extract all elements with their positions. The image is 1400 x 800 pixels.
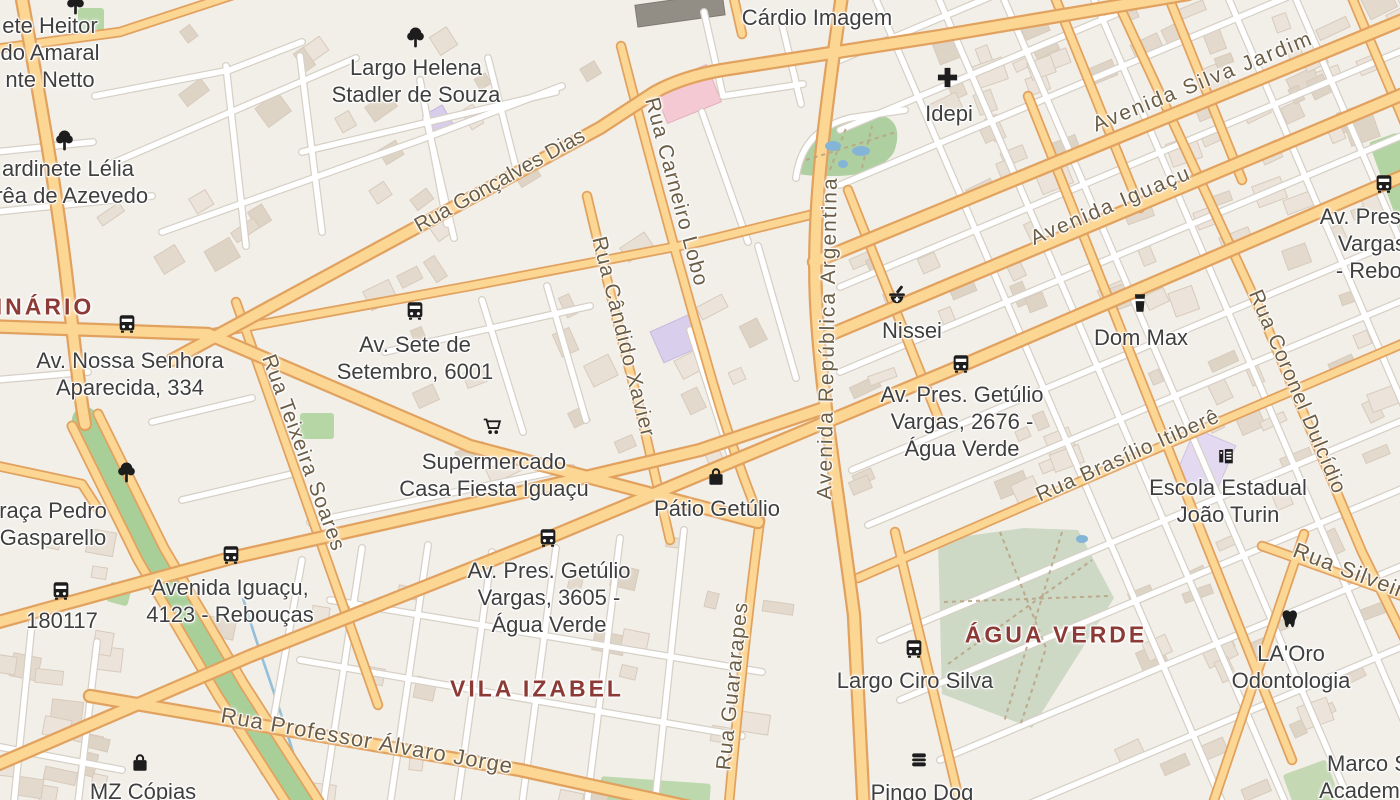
map-canvas[interactable]: INÁRIOVILA IZABELÁGUA VERDERua Gonçalves… xyxy=(0,0,1400,800)
tree-icon xyxy=(52,128,77,153)
place-label-line: do Amaral xyxy=(0,39,99,66)
place-label-line: Aparecida, 334 xyxy=(36,374,224,401)
place-label-idepi: Idepi xyxy=(925,100,973,127)
place-label-line: Avenida Iguaçu, xyxy=(146,574,314,601)
place-label-pingo-dog: Pingo Dog xyxy=(871,779,974,800)
place-label-sete: Av. Sete deSetembro, 6001 xyxy=(337,331,494,385)
place-label-laoro: LA'OroOdontologia xyxy=(1232,640,1351,694)
place-label-line: Nissei xyxy=(882,317,942,344)
place-label-line: ardinete Lélia xyxy=(0,155,148,182)
place-label-line: raça Pedro xyxy=(0,497,107,524)
place-label-line: Água Verde xyxy=(467,611,630,638)
place-label-line: MZ Cópias xyxy=(90,778,196,800)
place-label-line: Marco S xyxy=(1319,750,1400,777)
place-label-marco: Marco SAcademia xyxy=(1319,750,1400,800)
shopping-bag-icon xyxy=(129,752,151,774)
place-label-line: Academia xyxy=(1319,777,1400,800)
place-label-line: LA'Oro xyxy=(1232,640,1351,667)
place-label-getulio-reb: Av. Pres. GVargas,- Rebou xyxy=(1320,203,1400,284)
place-label-line: Escola Estadual xyxy=(1149,474,1307,501)
place-label-praca-pedro: raça PedroGasparello xyxy=(0,497,107,551)
place-label-line: 4123 - Rebouças xyxy=(146,601,314,628)
district-label-vila-izabel: VILA IZABEL xyxy=(450,676,624,703)
place-label-getulio-3605: Av. Pres. GetúlioVargas, 3605 -Água Verd… xyxy=(467,557,630,638)
place-label-line: Av. Nossa Senhora xyxy=(36,347,224,374)
bar-icon xyxy=(1129,292,1151,314)
place-label-cardio: Cárdio Imagem xyxy=(742,4,892,31)
place-label-line: Av. Pres. Getúlio xyxy=(880,381,1043,408)
place-label-line: rrêa de Azevedo xyxy=(0,182,148,209)
place-label-line: Gasparello xyxy=(0,524,107,551)
place-label-line: Av. Pres. Getúlio xyxy=(467,557,630,584)
bus-stop-icon xyxy=(903,638,925,660)
place-label-patio: Pátio Getúlio xyxy=(654,495,780,522)
place-label-line: Largo Ciro Silva xyxy=(837,667,994,694)
place-label-line: Av. Pres. G xyxy=(1320,203,1400,230)
tree-icon xyxy=(114,460,139,485)
bus-stop-icon xyxy=(220,544,242,566)
place-label-largo-helena: Largo HelenaStadler de Souza xyxy=(332,54,501,108)
shopping-bag-icon xyxy=(705,466,727,488)
place-label-mz-copias: MZ Cópias xyxy=(90,778,196,800)
district-label-in-rio: INÁRIO xyxy=(0,294,94,321)
bus-stop-icon xyxy=(1373,173,1395,195)
place-label-line: - Rebou xyxy=(1320,257,1400,284)
hospital-icon xyxy=(935,65,960,90)
place-label-line: Cárdio Imagem xyxy=(742,4,892,31)
place-label-line: Odontologia xyxy=(1232,667,1351,694)
fast-food-icon xyxy=(908,749,930,771)
place-label-dom-max: Dom Max xyxy=(1094,324,1188,351)
place-label-line: Pátio Getúlio xyxy=(654,495,780,522)
place-label-line: Pingo Dog xyxy=(871,779,974,800)
place-label-line: Dom Max xyxy=(1094,324,1188,351)
place-label-line: João Turin xyxy=(1149,501,1307,528)
place-label-getulio-2676: Av. Pres. GetúlioVargas, 2676 -Água Verd… xyxy=(880,381,1043,462)
supermarket-icon xyxy=(481,416,503,438)
place-label-heitor: ete Heitordo Amaralnte Netto xyxy=(0,12,99,93)
place-label-line: Largo Helena xyxy=(332,54,501,81)
place-label-line: Supermercado xyxy=(399,448,589,475)
place-label-line: Água Verde xyxy=(880,435,1043,462)
place-label-line: Setembro, 6001 xyxy=(337,358,494,385)
pharmacy-icon xyxy=(886,284,908,306)
place-label-line: Casa Fiesta Iguaçu xyxy=(399,475,589,502)
place-label-b180117: 180117 xyxy=(26,607,98,634)
bus-stop-icon xyxy=(404,300,426,322)
bus-stop-icon xyxy=(537,527,559,549)
place-label-nossa: Av. Nossa SenhoraAparecida, 334 xyxy=(36,347,224,401)
place-label-line: Vargas, 3605 - xyxy=(467,584,630,611)
bus-stop-icon xyxy=(50,580,72,602)
place-label-iguacu-4123: Avenida Iguaçu,4123 - Rebouças xyxy=(146,574,314,628)
district-label--gua-verde: ÁGUA VERDE xyxy=(965,622,1148,649)
place-label-line: Stadler de Souza xyxy=(332,81,501,108)
place-label-largo-ciro: Largo Ciro Silva xyxy=(837,667,994,694)
place-label-nissei: Nissei xyxy=(882,317,942,344)
place-label-lelia: ardinete Léliarrêa de Azevedo xyxy=(0,155,148,209)
bus-stop-icon xyxy=(116,313,138,335)
place-label-line: Idepi xyxy=(925,100,973,127)
place-label-line: Vargas, xyxy=(1320,230,1400,257)
place-label-line: Av. Sete de xyxy=(337,331,494,358)
place-label-line: nte Netto xyxy=(0,66,99,93)
tree-icon xyxy=(403,25,428,50)
place-label-line: 180117 xyxy=(26,607,98,634)
place-label-escola: Escola EstadualJoão Turin xyxy=(1149,474,1307,528)
dentist-icon xyxy=(1279,608,1301,630)
bus-stop-icon xyxy=(950,353,972,375)
school-icon xyxy=(1215,445,1237,467)
place-label-supermercado: SupermercadoCasa Fiesta Iguaçu xyxy=(399,448,589,502)
place-label-line: Vargas, 2676 - xyxy=(880,408,1043,435)
tree-icon xyxy=(63,0,88,17)
